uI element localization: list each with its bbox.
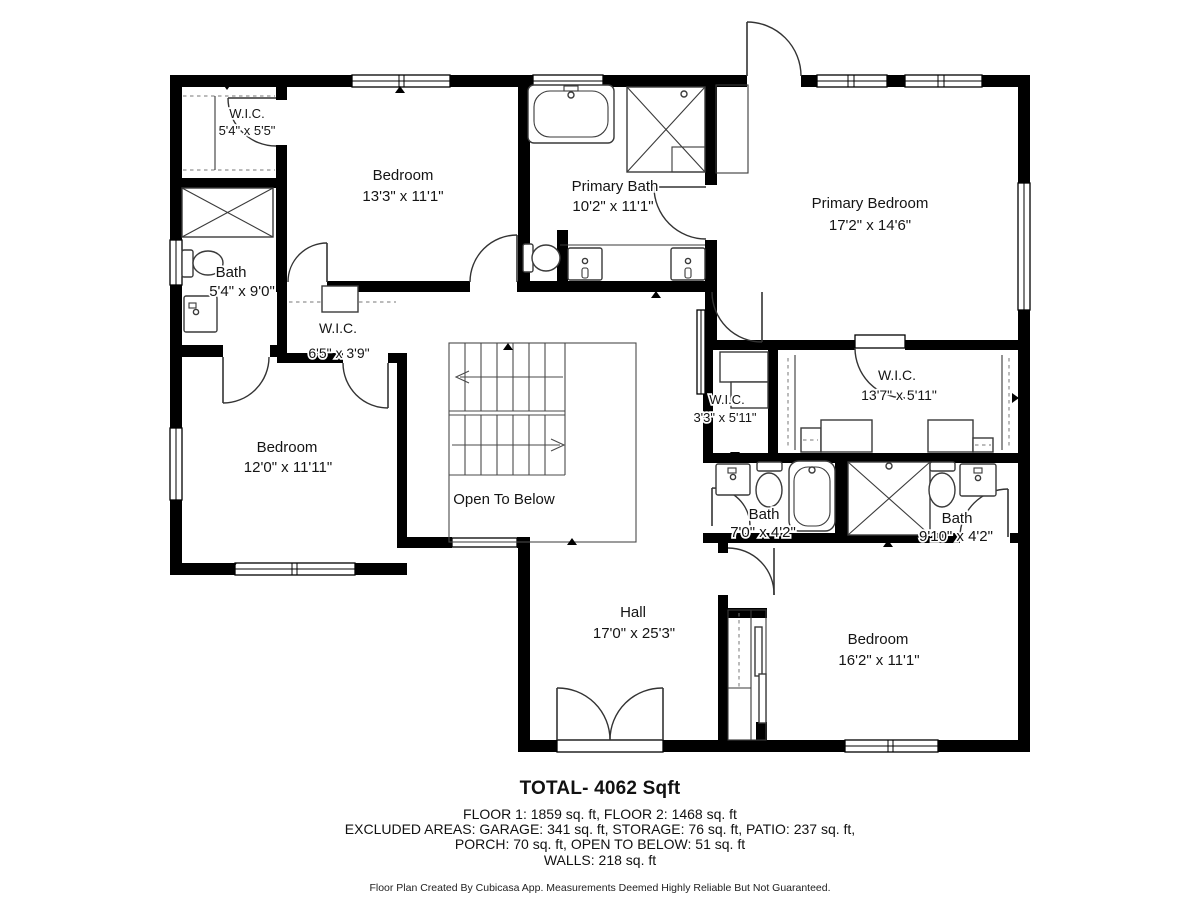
room-label: W.I.C. xyxy=(229,106,264,121)
sink xyxy=(716,464,750,495)
walls-layer xyxy=(170,75,1030,752)
railing xyxy=(697,310,705,394)
room-label: Bath xyxy=(749,506,780,523)
door xyxy=(223,357,269,403)
room-label: Bedroom xyxy=(257,439,318,456)
toilet xyxy=(929,462,955,507)
door xyxy=(712,292,762,342)
room-label: Bath xyxy=(216,264,247,281)
sink xyxy=(184,296,217,332)
room-label: Bedroom xyxy=(848,631,909,648)
closet xyxy=(728,610,766,740)
floor-plan-drawing: W.I.C. 5'4" x 5'5" Bedroom 13'3" x 11'1"… xyxy=(0,0,1200,900)
shower xyxy=(848,462,930,535)
window xyxy=(905,75,982,87)
window xyxy=(817,75,887,87)
room-dims: 10'2" x 11'1" xyxy=(572,198,653,215)
window xyxy=(352,75,450,87)
staircase xyxy=(449,343,636,542)
door xyxy=(343,363,388,408)
door xyxy=(470,235,517,282)
room-label: Bedroom xyxy=(373,167,434,184)
vanity xyxy=(560,245,705,280)
room-label: W.I.C. xyxy=(709,392,744,407)
stair-direction-arrow-down xyxy=(452,439,564,451)
room-label: Hall xyxy=(620,604,646,621)
room-dims: 12'0" x 11'11" xyxy=(244,459,332,476)
room-dims: 17'2" x 14'6" xyxy=(829,217,911,234)
window xyxy=(170,428,182,500)
window xyxy=(235,563,355,575)
door xyxy=(728,548,774,595)
floor-areas: FLOOR 1: 1859 sq. ft, FLOOR 2: 1468 sq. … xyxy=(0,807,1200,822)
room-dims: 13'3" x 11'1" xyxy=(362,188,443,205)
door xyxy=(654,187,706,239)
bathtub xyxy=(528,85,614,143)
shower xyxy=(627,87,705,172)
window xyxy=(170,240,182,285)
floor-plan-page: W.I.C. 5'4" x 5'5" Bedroom 13'3" x 11'1"… xyxy=(0,0,1200,900)
disclaimer-text: Floor Plan Created By Cubicasa App. Meas… xyxy=(0,882,1200,894)
room-dims: 6'5" x 3'9" xyxy=(308,345,369,361)
room-dims: 16'2" x 11'1" xyxy=(838,652,919,669)
toilet xyxy=(756,462,782,507)
room-label: Primary Bedroom xyxy=(812,195,929,212)
room-label: W.I.C. xyxy=(319,320,357,336)
room-dims: 17'0" x 25'3" xyxy=(593,625,675,642)
window xyxy=(845,740,938,752)
double-door xyxy=(557,688,663,752)
excluded-areas-cont: PORCH: 70 sq. ft, OPEN TO BELOW: 51 sq. … xyxy=(0,837,1200,852)
room-dims: 5'4" x 5'5" xyxy=(219,123,276,138)
room-dims: 9'10" x 4'2" xyxy=(919,528,993,545)
room-dims: 7'0" x 4'2" xyxy=(730,524,796,541)
room-dims: 3'3" x 5'11" xyxy=(693,410,756,425)
room-dims: 13'7" x 5'11" xyxy=(861,387,937,403)
door xyxy=(747,22,801,76)
stair-direction-arrow-up xyxy=(456,371,563,383)
room-dims: 5'4" x 9'0" xyxy=(209,283,275,300)
shower xyxy=(182,188,273,237)
window xyxy=(1018,183,1030,310)
walls-area: WALLS: 218 sq. ft xyxy=(0,853,1200,868)
room-label: W.I.C. xyxy=(878,367,916,383)
room-label: Open To Below xyxy=(453,491,555,508)
toilet xyxy=(523,244,560,272)
door xyxy=(288,243,327,282)
room-labels: W.I.C. 5'4" x 5'5" Bedroom 13'3" x 11'1"… xyxy=(209,106,993,669)
sink xyxy=(960,464,996,496)
bathtub xyxy=(789,461,835,531)
excluded-areas: EXCLUDED AREAS: GARAGE: 341 sq. ft, STOR… xyxy=(0,822,1200,837)
total-sqft: TOTAL- 4062 Sqft xyxy=(0,778,1200,800)
room-label: Bath xyxy=(942,510,973,527)
windows-layer xyxy=(170,75,1030,752)
room-label: Primary Bath xyxy=(572,178,659,195)
area-summary: TOTAL- 4062 Sqft FLOOR 1: 1859 sq. ft, F… xyxy=(0,778,1200,894)
